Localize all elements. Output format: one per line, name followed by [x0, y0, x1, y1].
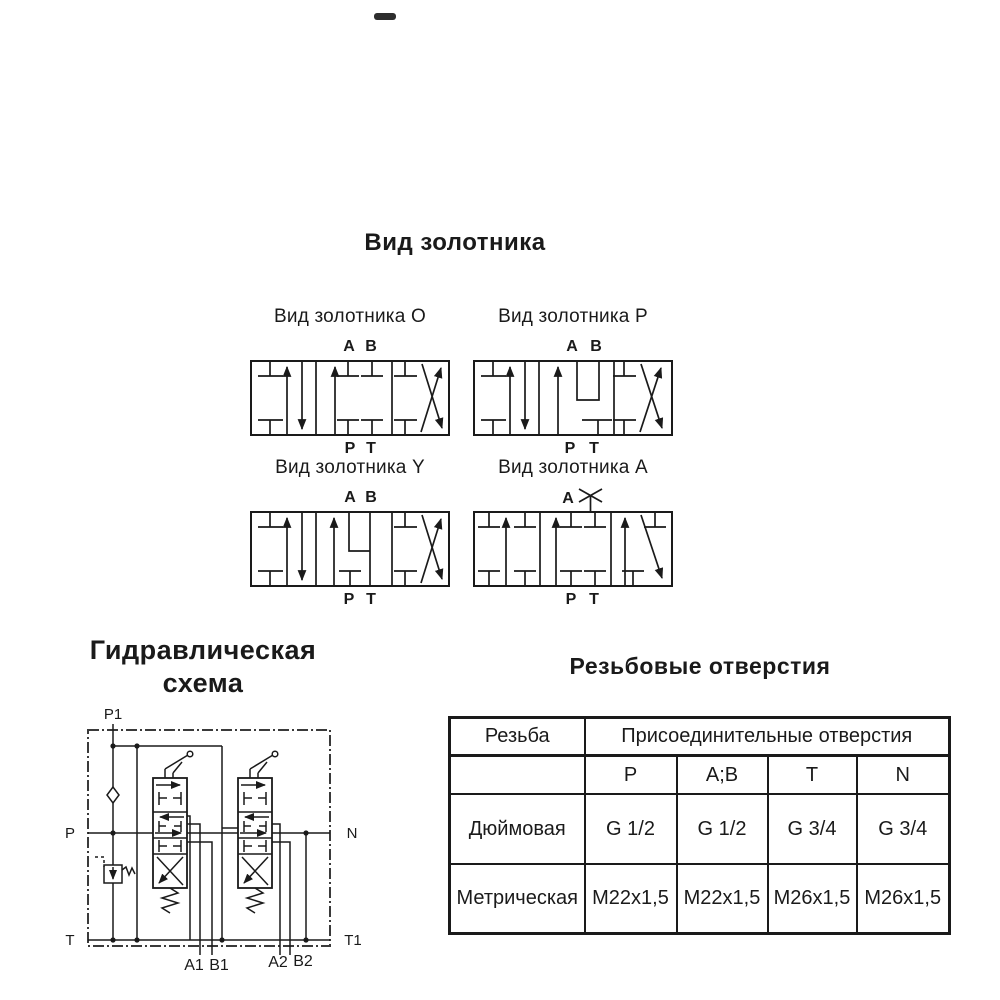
table-col-ab: A;B — [677, 756, 768, 795]
row-metric-t: M26x1,5 — [768, 864, 857, 934]
valve-group-a: Вид золотника A A P T — [473, 457, 677, 615]
row-metric-name: Метрическая — [450, 864, 585, 934]
valve-a-port-p: P — [566, 591, 577, 609]
hydra-label-a2: A2 — [268, 954, 288, 971]
row-inch-ab: G 1/2 — [677, 794, 768, 864]
row-metric-p: M22x1,5 — [585, 864, 677, 934]
hydraulic-schematic: P1 P T N T1 A1 B1 A2 B2 — [56, 696, 372, 988]
valve-y-title: Вид золотника Y — [250, 457, 450, 479]
datasheet-page: { "main_title": "Вид золотника", "valves… — [0, 0, 1000, 1000]
table-subheader-empty — [450, 756, 585, 795]
valve-a-title: Вид золотника A — [473, 457, 673, 479]
row-inch-t: G 3/4 — [768, 794, 857, 864]
valve-y-port-p: P — [344, 591, 355, 609]
row-metric-ab: M22x1,5 — [677, 864, 768, 934]
valve-a-port-a: A — [562, 490, 574, 508]
valve-p-symbol — [473, 360, 673, 436]
table-col-t: T — [768, 756, 857, 795]
valve-p-port-p: P — [565, 440, 576, 458]
table-col-n: N — [857, 756, 950, 795]
valve-y-symbol — [250, 511, 450, 587]
valve-p-port-a: A — [566, 338, 578, 356]
thread-table-title: Резьбовые отверстия — [450, 653, 950, 680]
table-col-p: P — [585, 756, 677, 795]
valve-o-port-b: B — [365, 338, 377, 356]
table-header-thread: Резьба — [450, 718, 585, 756]
table-row-inch: Дюймовая G 1/2 G 1/2 G 3/4 G 3/4 — [450, 794, 950, 864]
hydra-label-t1: T1 — [344, 932, 362, 949]
valve-o-symbol — [250, 360, 450, 436]
row-inch-p: G 1/2 — [585, 794, 677, 864]
thread-table: Резьба Присоединительные отверстия P A;B… — [448, 716, 951, 935]
valve-group-y: Вид золотника Y A B P T — [250, 457, 454, 615]
valve-group-p: Вид золотника P A B P T — [473, 306, 677, 464]
hydra-label-b2: B2 — [293, 953, 313, 970]
valve-o-title: Вид золотника O — [250, 306, 450, 328]
valve-group-o: Вид золотника O A B P T — [250, 306, 454, 464]
hydra-label-t: T — [65, 932, 74, 949]
valve-a-port-t: T — [589, 591, 599, 609]
hydra-label-n: N — [347, 825, 358, 842]
valve-o-port-a: A — [343, 338, 355, 356]
hydra-label-a1: A1 — [184, 957, 204, 974]
valve-y-port-t: T — [366, 591, 376, 609]
table-header-connection-holes: Присоединительные отверстия — [585, 718, 950, 756]
row-metric-n: M26x1,5 — [857, 864, 950, 934]
valve-p-title: Вид золотника P — [473, 306, 673, 328]
valve-y-port-a: A — [344, 489, 356, 507]
valve-o-port-t: T — [366, 440, 376, 458]
valve-o-port-p: P — [345, 440, 356, 458]
valve-a-port-b-plugged-icon — [577, 486, 605, 512]
hydraulic-schema-title-line1: Гидравлическая — [58, 634, 348, 667]
valve-y-port-b: B — [365, 489, 377, 507]
table-row-metric: Метрическая M22x1,5 M22x1,5 M26x1,5 M26x… — [450, 864, 950, 934]
hydraulic-schema-title: Гидравлическая схема — [58, 634, 348, 700]
logo-dash — [374, 13, 396, 20]
valve-p-port-b: B — [590, 338, 602, 356]
hydra-label-p1: P1 — [104, 706, 122, 723]
row-inch-n: G 3/4 — [857, 794, 950, 864]
row-inch-name: Дюймовая — [450, 794, 585, 864]
hydra-label-p: P — [65, 825, 75, 842]
page-title: Вид золотника — [255, 229, 655, 257]
hydra-label-b1: B1 — [209, 957, 229, 974]
valve-a-symbol — [473, 511, 673, 587]
valve-p-port-t: T — [589, 440, 599, 458]
